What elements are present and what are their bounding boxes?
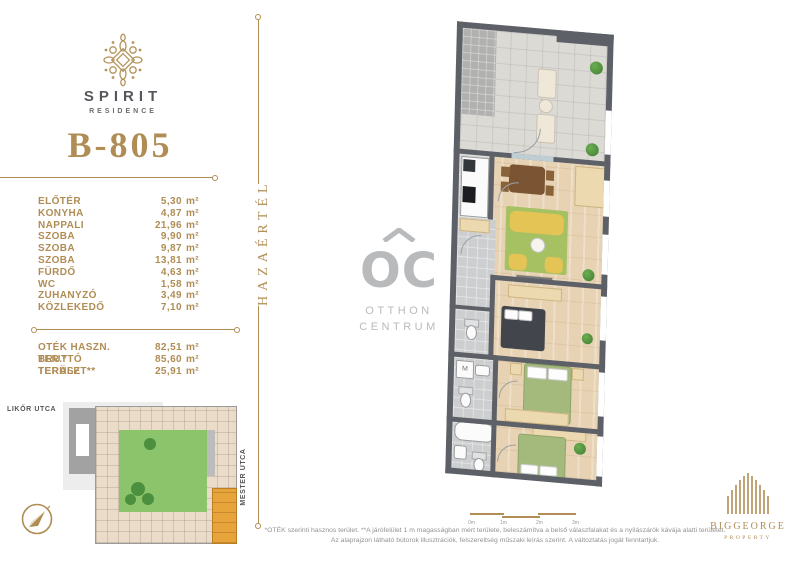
street-label-likor: LIKŐR UTCA <box>7 406 56 413</box>
area-value: 3,49 <box>134 290 182 302</box>
area-unit: m² <box>182 342 206 354</box>
area-value: 9,90 <box>134 231 182 243</box>
compass-icon <box>20 502 54 536</box>
footnote-line1: *OTÉK szerinti hasznos terület. **A járó… <box>260 526 730 536</box>
area-value: 1,58 <box>134 279 182 291</box>
area-unit: m² <box>182 267 206 279</box>
total-row: OTÉK HASZN. TER.*82,51m² <box>38 342 206 354</box>
total-label: TERASZ <box>38 366 134 378</box>
area-label: WC <box>38 279 134 291</box>
site-tree <box>144 438 156 450</box>
tagline: HAZAÉRTÉL <box>250 184 278 306</box>
area-unit: m² <box>182 243 206 255</box>
area-row: WC1,58m² <box>38 279 206 291</box>
area-row: KONYHA4,87m² <box>38 208 206 220</box>
unit-underline-dot <box>212 175 218 181</box>
area-unit: m² <box>182 366 206 378</box>
area-row: SZOBA13,81m² <box>38 255 206 267</box>
brand-ornament-icon <box>96 33 150 87</box>
area-unit: m² <box>182 354 206 366</box>
table-divider <box>34 329 236 330</box>
area-unit: m² <box>182 290 206 302</box>
area-unit: m² <box>182 220 206 232</box>
door-arcs <box>445 21 614 487</box>
area-row: ZUHANYZÓ3,49m² <box>38 290 206 302</box>
developer-subtitle: PROPERTY <box>700 535 796 541</box>
total-value: 85,60 <box>134 354 182 366</box>
floor-plan: M <box>445 21 614 487</box>
site-unit-highlight <box>212 488 237 544</box>
area-row: SZOBA9,90m² <box>38 231 206 243</box>
site-plan <box>55 396 237 546</box>
area-row: NAPPALI21,96m² <box>38 220 206 232</box>
site-tree <box>125 494 136 505</box>
area-table: ELŐTÉR5,30m² KONYHA4,87m² NAPPALI21,96m²… <box>38 196 206 314</box>
total-value: 25,91 <box>134 366 182 378</box>
area-label: FÜRDŐ <box>38 267 134 279</box>
brochure-page: SPIRIT RESIDENCE B-805 ELŐTÉR5,30m² KONY… <box>0 0 800 565</box>
table-divider-dot-right <box>234 327 240 333</box>
site-neighbor-court <box>76 424 89 456</box>
footnote-line2: Az alaprajzon látható bútorok illusztrác… <box>260 536 730 546</box>
total-row: TERASZ25,91m² <box>38 366 206 378</box>
area-unit: m² <box>182 302 206 314</box>
total-label: OTÉK HASZN. TER.* <box>38 342 134 354</box>
agency-line2: CENTRUM <box>349 321 449 333</box>
agency-line1: OTTHON <box>349 305 449 317</box>
scale-segment <box>538 513 576 515</box>
area-label: SZOBA <box>38 255 134 267</box>
scale-segment <box>470 513 504 515</box>
area-label: ELŐTÉR <box>38 196 134 208</box>
area-row: SZOBA9,87m² <box>38 243 206 255</box>
brand-subtitle: RESIDENCE <box>53 108 193 115</box>
developer-fan-icon <box>700 472 796 521</box>
area-label: NAPPALI <box>38 220 134 232</box>
table-divider-dot-left <box>31 327 37 333</box>
area-value: 7,10 <box>134 302 182 314</box>
area-value: 4,63 <box>134 267 182 279</box>
area-value: 4,87 <box>134 208 182 220</box>
scale-segment <box>502 516 540 518</box>
area-unit: m² <box>182 255 206 267</box>
street-label-mester: MESTER UTCA <box>240 448 252 506</box>
area-unit: m² <box>182 279 206 291</box>
area-value: 9,87 <box>134 243 182 255</box>
area-row: FÜRDŐ4,63m² <box>38 267 206 279</box>
unit-id: B-805 <box>20 124 220 166</box>
area-row: KÖZLEKEDŐ7,10m² <box>38 302 206 314</box>
agency-initials: OC <box>349 247 449 295</box>
footnotes: *OTÉK szerinti hasznos terület. **A járó… <box>260 526 730 546</box>
agency-logo: OC OTTHON CENTRUM <box>349 228 449 333</box>
total-value: 82,51 <box>134 342 182 354</box>
totals-table: OTÉK HASZN. TER.*82,51m² BRUTTÓ TERÜLET*… <box>38 342 206 377</box>
divider-dot-top <box>255 14 261 20</box>
area-label: ZUHANYZÓ <box>38 290 134 302</box>
area-unit: m² <box>182 208 206 220</box>
site-tree <box>142 493 154 505</box>
area-value: 5,30 <box>134 196 182 208</box>
area-unit: m² <box>182 231 206 243</box>
brand-name: SPIRIT <box>53 88 193 105</box>
unit-underline <box>0 177 212 178</box>
area-label: SZOBA <box>38 231 134 243</box>
site-corridor <box>207 430 215 476</box>
area-label: KÖZLEKEDŐ <box>38 302 134 314</box>
developer-logo: BIGGEORGE PROPERTY <box>700 472 796 541</box>
area-unit: m² <box>182 196 206 208</box>
total-row: BRUTTÓ TERÜLET**85,60m² <box>38 354 206 366</box>
area-label: SZOBA <box>38 243 134 255</box>
total-label: BRUTTÓ TERÜLET** <box>38 354 134 366</box>
area-value: 21,96 <box>134 220 182 232</box>
area-label: KONYHA <box>38 208 134 220</box>
area-value: 13,81 <box>134 255 182 267</box>
area-row: ELŐTÉR5,30m² <box>38 196 206 208</box>
developer-name: BIGGEORGE <box>700 521 796 532</box>
